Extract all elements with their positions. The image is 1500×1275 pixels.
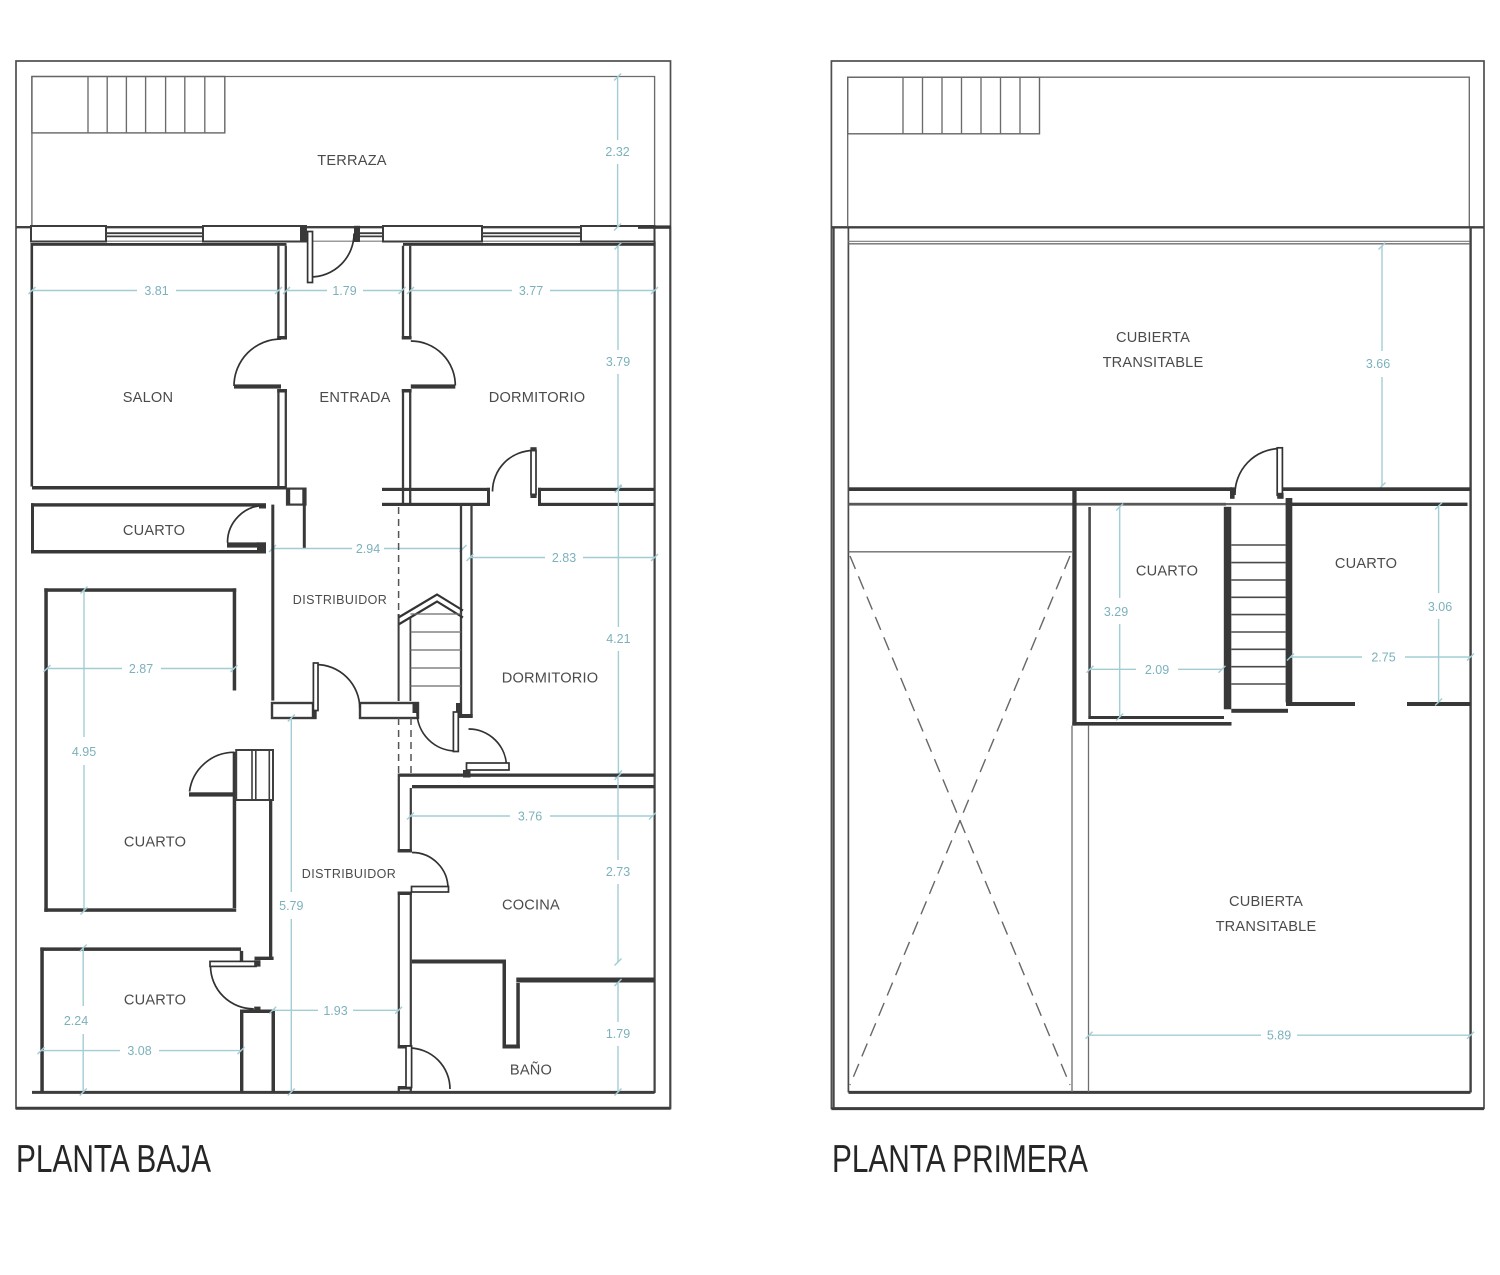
svg-text:DORMITORIO: DORMITORIO [502, 671, 599, 687]
svg-text:COCINA: COCINA [502, 898, 560, 914]
svg-text:CUBIERTA: CUBIERTA [1229, 894, 1303, 910]
svg-text:TERRAZA: TERRAZA [317, 153, 387, 169]
svg-text:3.08: 3.08 [127, 1044, 151, 1058]
svg-text:CUARTO: CUARTO [124, 835, 186, 851]
svg-text:TRANSITABLE: TRANSITABLE [1216, 919, 1317, 935]
svg-text:4.21: 4.21 [606, 632, 630, 646]
svg-text:4.95: 4.95 [72, 745, 96, 759]
svg-text:TRANSITABLE: TRANSITABLE [1103, 355, 1204, 371]
svg-text:3.79: 3.79 [606, 355, 630, 369]
svg-text:BAÑO: BAÑO [510, 1062, 552, 1079]
svg-text:3.76: 3.76 [518, 810, 542, 824]
svg-text:3.29: 3.29 [1104, 605, 1128, 619]
svg-text:2.24: 2.24 [64, 1014, 88, 1028]
svg-text:2.09: 2.09 [1145, 663, 1169, 677]
svg-text:3.06: 3.06 [1428, 600, 1452, 614]
svg-text:PLANTA PRIMERA: PLANTA PRIMERA [832, 1138, 1088, 1181]
svg-text:2.87: 2.87 [129, 662, 153, 676]
svg-text:2.83: 2.83 [552, 551, 576, 565]
svg-text:1.93: 1.93 [323, 1004, 347, 1018]
svg-text:2.73: 2.73 [606, 865, 630, 879]
svg-text:CUARTO: CUARTO [123, 523, 185, 539]
svg-text:3.66: 3.66 [1366, 357, 1390, 371]
svg-text:ENTRADA: ENTRADA [319, 390, 390, 406]
svg-text:CUARTO: CUARTO [1136, 564, 1198, 580]
svg-text:5.79: 5.79 [279, 899, 303, 913]
svg-text:5.89: 5.89 [1267, 1029, 1291, 1043]
svg-text:1.79: 1.79 [332, 284, 356, 298]
svg-text:2.75: 2.75 [1371, 651, 1395, 665]
svg-text:1.79: 1.79 [606, 1027, 630, 1041]
svg-text:SALON: SALON [123, 390, 173, 406]
svg-text:3.77: 3.77 [519, 284, 543, 298]
svg-text:CUARTO: CUARTO [124, 993, 186, 1009]
svg-text:2.32: 2.32 [605, 145, 629, 159]
svg-text:DORMITORIO: DORMITORIO [489, 390, 586, 406]
svg-text:DISTRIBUIDOR: DISTRIBUIDOR [302, 867, 396, 881]
svg-text:CUBIERTA: CUBIERTA [1116, 330, 1190, 346]
svg-text:CUARTO: CUARTO [1335, 556, 1397, 572]
svg-text:3.81: 3.81 [144, 284, 168, 298]
svg-text:2.94: 2.94 [356, 542, 380, 556]
svg-text:DISTRIBUIDOR: DISTRIBUIDOR [293, 593, 387, 607]
svg-text:PLANTA BAJA: PLANTA BAJA [16, 1138, 211, 1181]
